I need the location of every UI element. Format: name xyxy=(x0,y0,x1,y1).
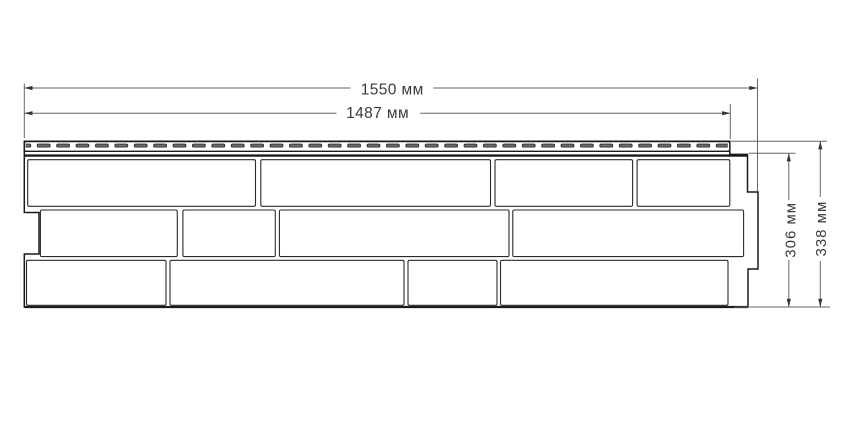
svg-text:1550 мм: 1550 мм xyxy=(361,81,424,98)
svg-text:338 мм: 338 мм xyxy=(813,201,830,257)
svg-text:306 мм: 306 мм xyxy=(782,202,799,258)
svg-text:1487 мм: 1487 мм xyxy=(346,105,409,122)
